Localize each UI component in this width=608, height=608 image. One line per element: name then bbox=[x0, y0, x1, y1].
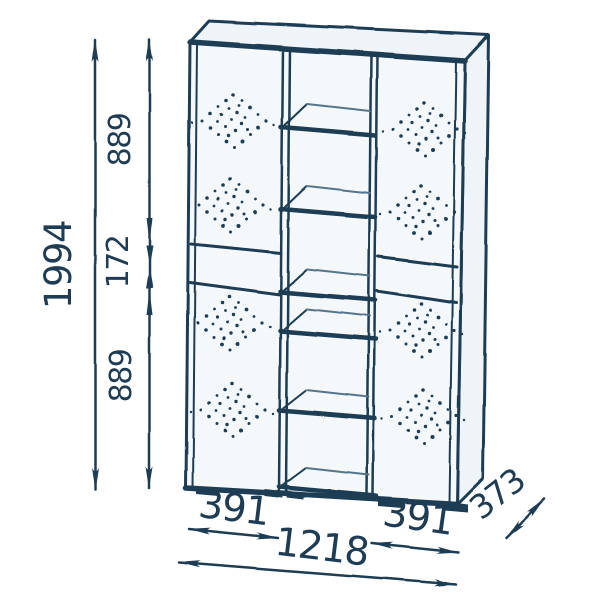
total-height-label: 1994 bbox=[37, 221, 80, 309]
middle-section-height-label: 172 bbox=[101, 236, 136, 289]
left-door-width-label: 391 bbox=[196, 482, 271, 535]
cabinet-technical-drawing: 1994 889 172 889 391 391 1218 373 bbox=[0, 0, 608, 608]
top-section-height-label: 889 bbox=[103, 114, 138, 167]
total-width-label: 1218 bbox=[272, 520, 370, 576]
right-door-width-label: 391 bbox=[380, 490, 456, 544]
furniture-dimension-diagram: 1994 889 172 889 391 391 1218 373 bbox=[0, 0, 608, 608]
front-face bbox=[186, 42, 465, 504]
right-width-dimension-line bbox=[372, 543, 459, 552]
bottom-section-height-label: 889 bbox=[104, 350, 139, 403]
cabinet bbox=[186, 21, 489, 512]
